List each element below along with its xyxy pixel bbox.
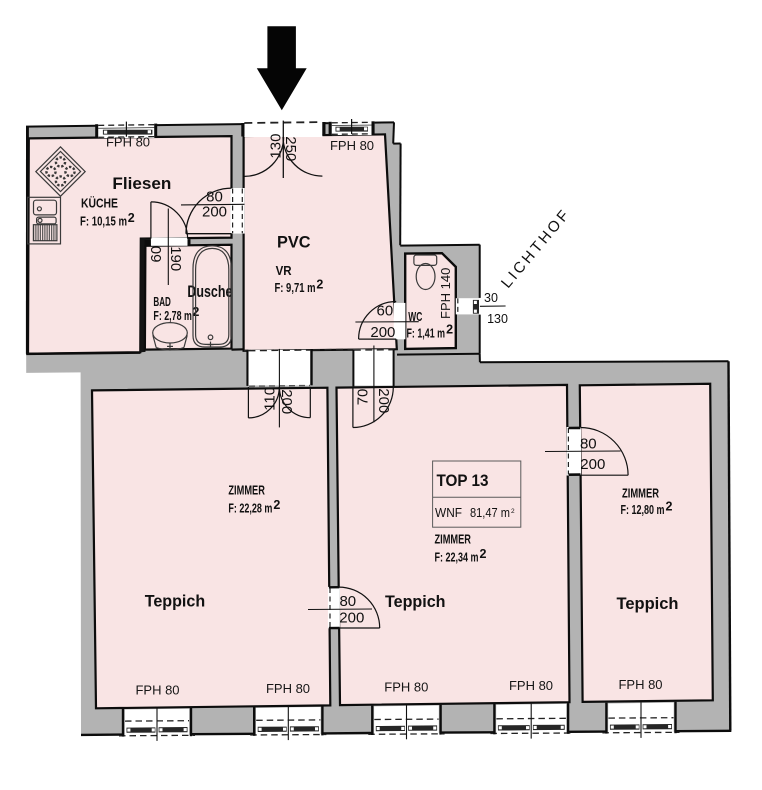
svg-text:2: 2 (316, 277, 323, 291)
svg-text:F: 9,71 m: F: 9,71 m (275, 281, 316, 295)
svg-text:Teppich: Teppich (385, 593, 446, 611)
svg-text:2: 2 (273, 498, 280, 512)
svg-text:60: 60 (148, 246, 165, 263)
svg-text:200: 200 (580, 456, 605, 473)
svg-text:FPH 80: FPH 80 (266, 681, 310, 696)
svg-text:TOP 13: TOP 13 (437, 471, 489, 490)
svg-text:FPH 80: FPH 80 (509, 678, 553, 693)
svg-text:200: 200 (278, 389, 295, 414)
svg-text:Dusche: Dusche (187, 283, 232, 301)
svg-text:FPH 80: FPH 80 (135, 682, 179, 697)
svg-text:200: 200 (339, 609, 364, 626)
svg-text:F: 12,80 m: F: 12,80 m (621, 503, 665, 517)
svg-text:Fliesen: Fliesen (112, 175, 171, 193)
svg-text:FPH 80: FPH 80 (106, 134, 150, 149)
svg-text:Teppich: Teppich (617, 595, 679, 613)
svg-text:80: 80 (580, 435, 597, 452)
svg-text:F: 10,15 m: F: 10,15 m (80, 215, 127, 229)
svg-text:2: 2 (480, 547, 487, 561)
svg-text:250: 250 (282, 136, 299, 161)
svg-text:130: 130 (487, 312, 508, 326)
svg-text:200: 200 (202, 204, 227, 221)
svg-text:ZIMMER: ZIMMER (622, 486, 659, 500)
svg-text:60: 60 (377, 303, 394, 320)
svg-text:190: 190 (167, 246, 184, 271)
svg-text:FPH 80: FPH 80 (330, 138, 374, 153)
svg-text:KÜCHE: KÜCHE (81, 196, 118, 211)
svg-text:ZIMMER: ZIMMER (435, 532, 472, 546)
svg-text:F: 22,34 m: F: 22,34 m (435, 551, 479, 565)
svg-text:110: 110 (262, 387, 279, 411)
svg-text:F: 22,28 m: F: 22,28 m (228, 501, 272, 515)
svg-text:PVC: PVC (277, 234, 311, 252)
svg-text:2: 2 (666, 500, 673, 514)
svg-text:WC: WC (408, 310, 422, 324)
svg-text:2: 2 (446, 322, 453, 336)
svg-text:FPH 80: FPH 80 (618, 677, 662, 692)
svg-text:Teppich: Teppich (145, 593, 206, 611)
svg-text:70: 70 (354, 389, 371, 406)
svg-text:BAD: BAD (153, 295, 171, 309)
svg-text:2: 2 (511, 508, 515, 515)
svg-text:200: 200 (370, 324, 395, 341)
svg-text:FPH 140: FPH 140 (438, 268, 453, 319)
svg-text:WNF: WNF (435, 506, 462, 520)
svg-text:80: 80 (339, 593, 356, 610)
svg-text:2: 2 (128, 211, 135, 225)
svg-text:200: 200 (375, 388, 392, 413)
svg-text:81,47 m: 81,47 m (470, 506, 510, 520)
svg-text:ZIMMER: ZIMMER (228, 483, 265, 497)
svg-text:30: 30 (484, 291, 498, 305)
svg-text:FPH 80: FPH 80 (384, 680, 428, 695)
svg-text:F: 2,78 m: F: 2,78 m (153, 309, 192, 323)
svg-text:F: 1,41 m: F: 1,41 m (407, 327, 446, 341)
svg-text:VR: VR (276, 264, 292, 278)
